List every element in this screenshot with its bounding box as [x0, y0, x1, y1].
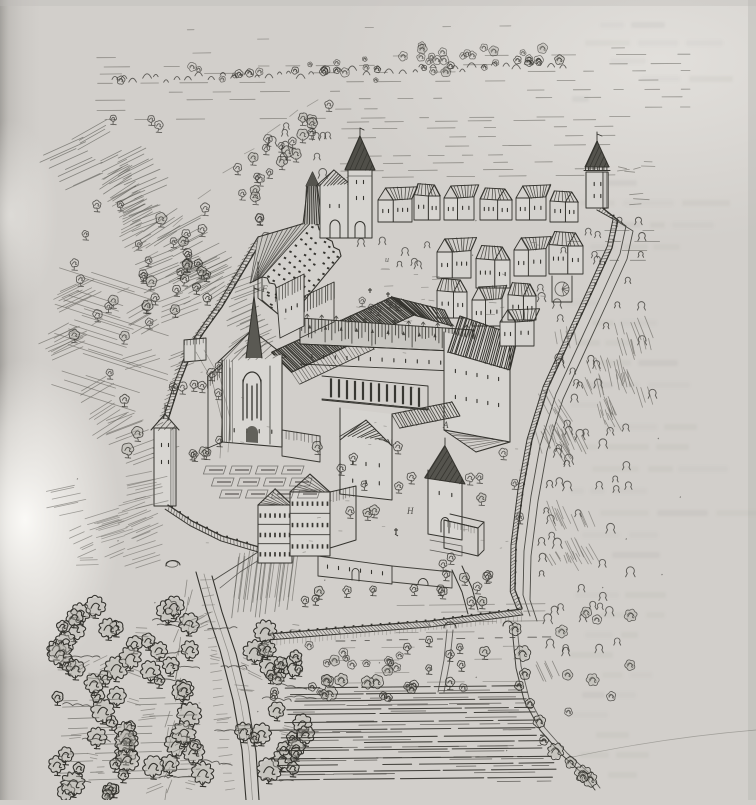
svg-text:F: F: [261, 284, 268, 294]
svg-text:H: H: [406, 506, 414, 516]
svg-text:u: u: [385, 255, 389, 264]
svg-text:A: A: [442, 420, 449, 430]
